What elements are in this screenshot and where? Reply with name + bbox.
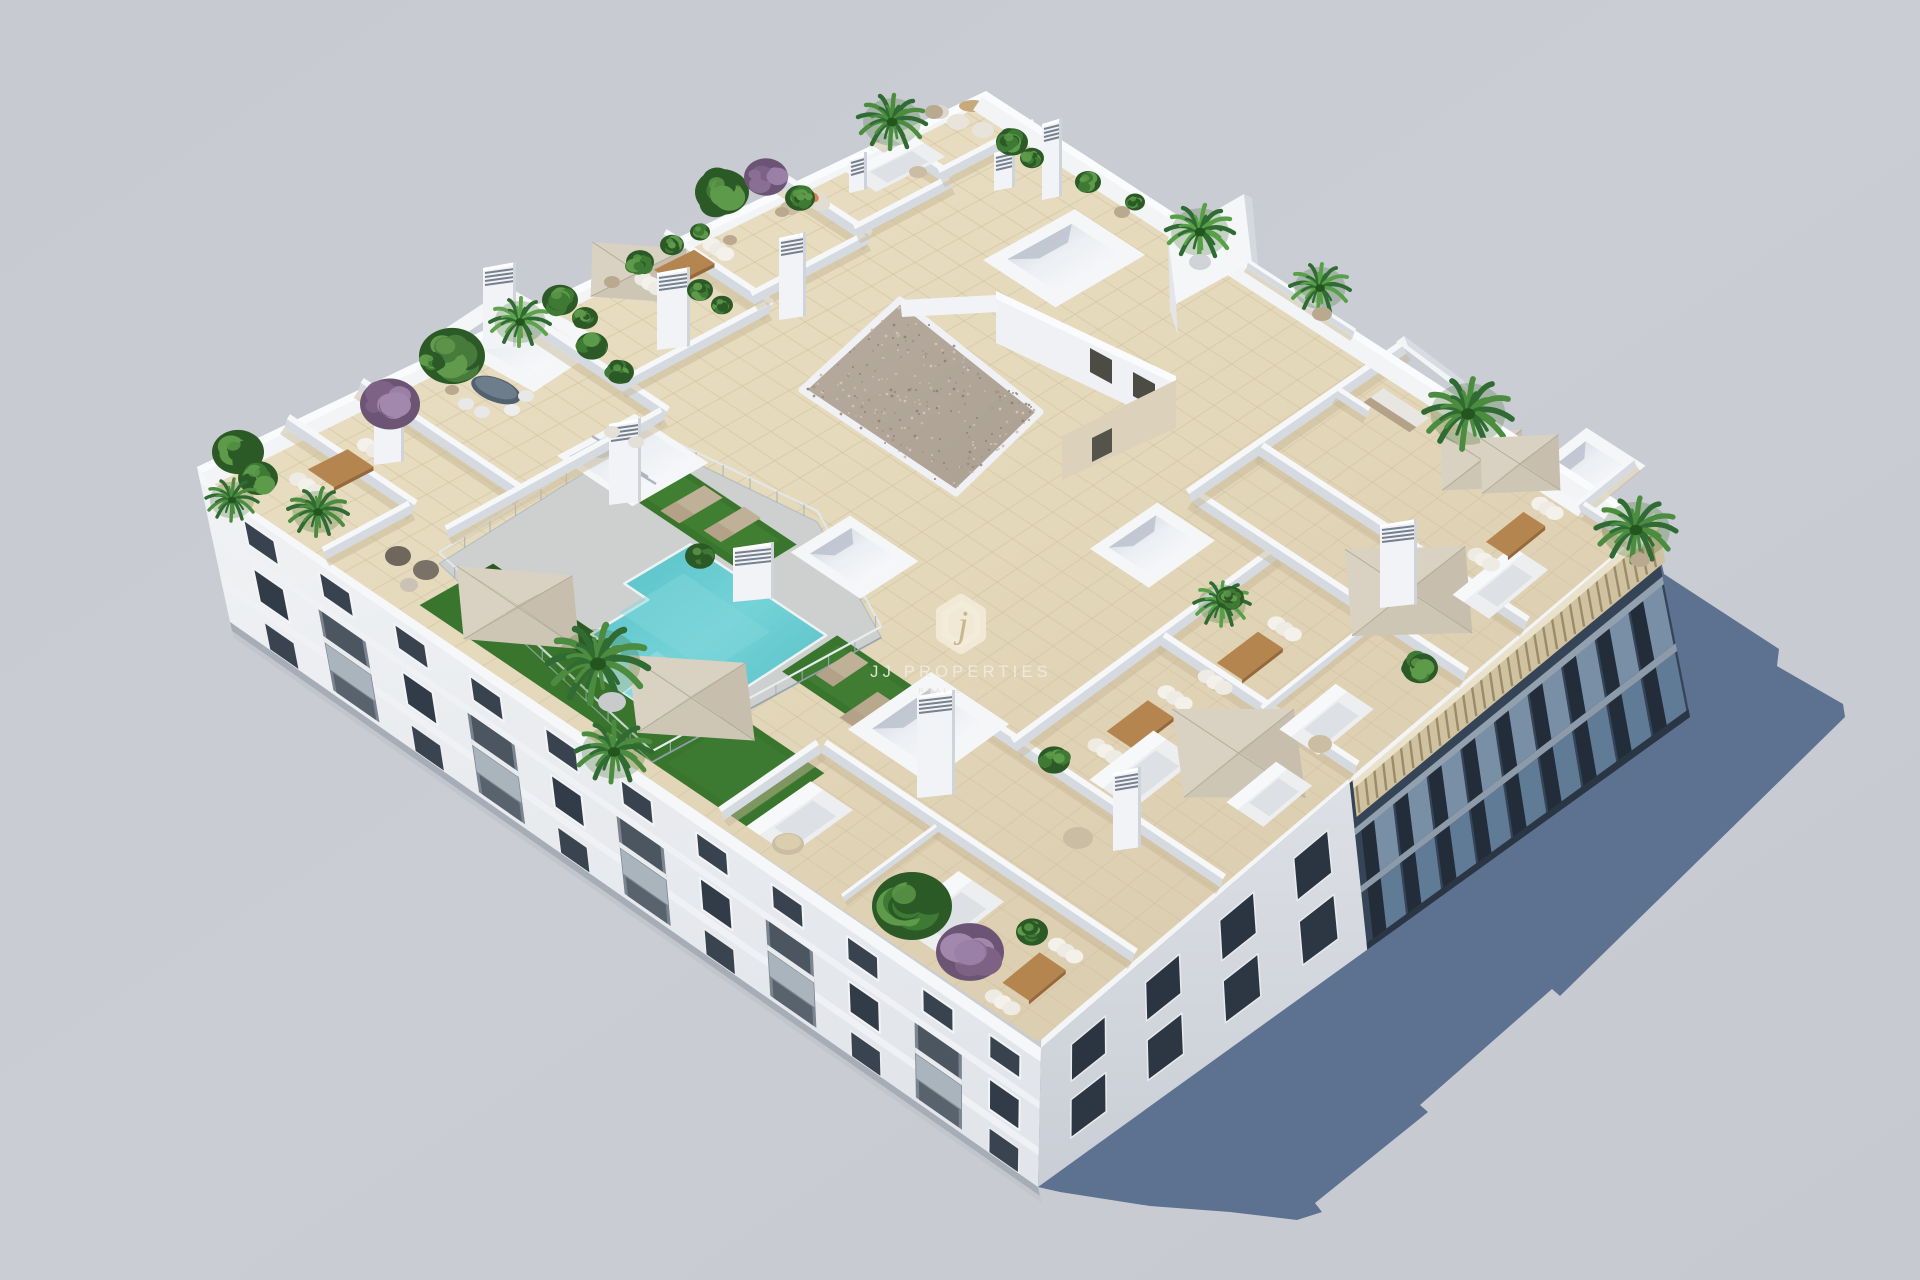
svg-text:REAL ESTATE: REAL ESTATE xyxy=(919,688,1004,695)
svg-text:JJ PROPERTIES: JJ PROPERTIES xyxy=(870,663,1052,681)
